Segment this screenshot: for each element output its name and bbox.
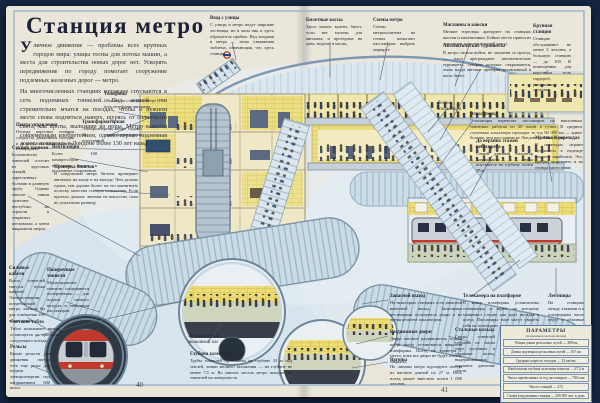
- callout-ticket-check: Проверка билетовВ лондонском метро билет…: [54, 165, 138, 205]
- book-photo: { "book": { "title": "Станция метро", "p…: [0, 0, 600, 403]
- params-row: Самая загруженная станция — 200 000 чел.…: [503, 392, 589, 400]
- parameters-fact-box: ПАРАМЕТРЫ (лондонского метрополитена) Об…: [500, 325, 592, 403]
- callout-display-board: Световое таблоТабло показывает время, ос…: [10, 320, 60, 343]
- callout-power-cables: Силовые кабелиВдоль тоннелей тянутся пуч…: [9, 266, 45, 324]
- params-row: Число станций — 272: [503, 383, 589, 391]
- callout-carriages: ВагоныПо линиям метро курсируют поезда и…: [390, 358, 462, 387]
- params-row: Средняя скорость поездов — 33 км/час: [503, 357, 589, 365]
- callout-ticket-office: Билетные кассыЗдесь можно купить билет, …: [306, 18, 362, 47]
- page-number-left: 40: [136, 381, 143, 389]
- callout-shops-kiosks: Магазины и киоскиМелкие торговцы арендую…: [443, 23, 531, 46]
- callout-tunnel-section: Секция тоннеляБольшинство тоннелей состо…: [12, 146, 49, 232]
- callout-turnstiles: Автоматические турникетыВ метро нельзя в…: [443, 44, 531, 79]
- callout-street-entrance: Вход с улицыС улицы в метро ведут широки…: [210, 16, 274, 56]
- callout-depth: Глубина залеганияТрубы тоннелей проложен…: [190, 352, 292, 381]
- callout-cross-tunnels: Поперечные тоннелиМагистральные тоннели …: [47, 268, 89, 314]
- callout-big-station: Крупная станцияСтанцию обслуживают не ме…: [533, 24, 571, 93]
- callout-buskers: Музыка в переходахВ переходах играют муз…: [535, 136, 583, 171]
- callout-escalator-machine-room: Эскалаторный машинный зал: [188, 334, 230, 346]
- params-row: Число перевозимых за год пассажиров — 78…: [503, 374, 589, 382]
- callout-longest-escalator: До верхних этажей небоскребаСамый длинны…: [476, 139, 533, 174]
- params-row: Наибольшая глубина залегания тоннеля — 6…: [503, 366, 589, 374]
- page-number-right: 41: [441, 386, 448, 394]
- intro-paragraph-1: личное движение — проблема всех крупных …: [20, 42, 167, 84]
- callout-steel-rings: Стальные кольцаСводы тоннелей собраны из…: [455, 328, 495, 374]
- page-title: Станция метро: [26, 13, 205, 39]
- drop-cap: У: [20, 42, 33, 54]
- params-row: Общая длина рельсовых путей — 408 км: [503, 339, 589, 347]
- callout-rails: РельсыКроме рельсов для движения поезда …: [10, 345, 50, 391]
- callout-escalator-belt: Лента эскалатора: [437, 101, 471, 113]
- callout-transformer-room: ТрансформаторнаяЭлектроэнергию метро под…: [82, 120, 142, 143]
- callout-platform-camera: Телекамера на платформеВ конце платформы…: [463, 294, 539, 329]
- callout-metro-maps: Схемы метроСхемы метрополитена на стенах…: [373, 18, 415, 53]
- params-subtitle: (лондонского метрополитена): [503, 334, 589, 338]
- params-row: Длина подземных рельсовых путей — 167 км: [503, 348, 589, 356]
- callout-emergency-exit: Запасной выходНа некоторых станциях есть…: [390, 294, 462, 323]
- callout-telephones: ТелефоныОбычно на станциях метро есть те…: [104, 92, 156, 110]
- callout-stairs: ЛестницыНа станциях между этажами и к пл…: [548, 294, 584, 329]
